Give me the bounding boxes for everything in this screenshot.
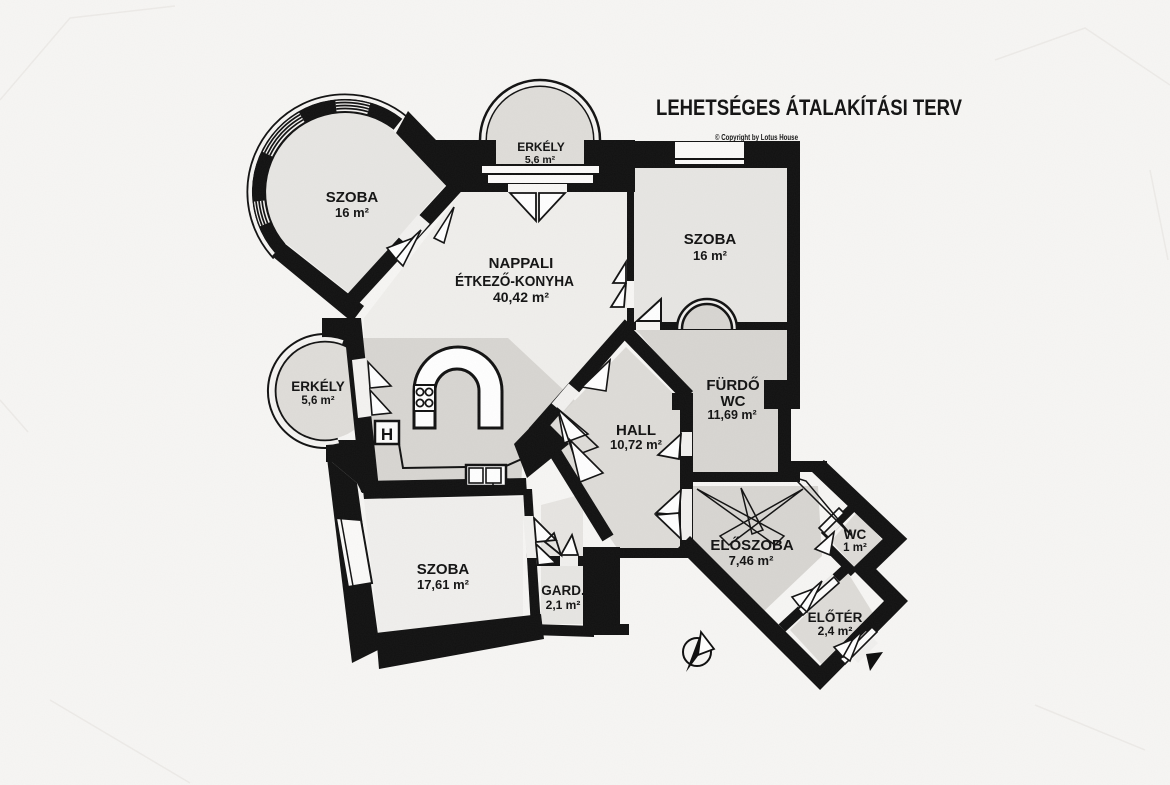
svg-text:7,46 m²: 7,46 m²: [729, 553, 774, 568]
svg-text:5,6 m²: 5,6 m²: [525, 154, 556, 166]
svg-text:LEHETSÉGES ÁTALAKÍTÁSI TERV: LEHETSÉGES ÁTALAKÍTÁSI TERV: [656, 95, 962, 120]
svg-text:NAPPALI: NAPPALI: [489, 255, 554, 272]
svg-text:5,6 m²: 5,6 m²: [301, 395, 334, 407]
svg-text:16 m²: 16 m²: [693, 248, 728, 263]
svg-text:SZOBA: SZOBA: [326, 189, 379, 206]
svg-text:SZOBA: SZOBA: [417, 561, 470, 578]
svg-text:WC: WC: [844, 527, 867, 542]
svg-text:2,1 m²: 2,1 m²: [546, 598, 581, 612]
svg-text:SZOBA: SZOBA: [684, 231, 737, 248]
svg-text:ERKÉLY: ERKÉLY: [291, 379, 345, 394]
svg-text:1 m²: 1 m²: [843, 542, 867, 554]
svg-text:11,69 m²: 11,69 m²: [707, 408, 756, 422]
svg-text:FÜRDŐ: FÜRDŐ: [706, 376, 760, 394]
svg-text:16 m²: 16 m²: [335, 205, 370, 220]
svg-text:© Copyright by Lotus House: © Copyright by Lotus House: [715, 133, 798, 142]
svg-text:17,61 m²: 17,61 m²: [417, 577, 470, 592]
svg-text:2,4 m²: 2,4 m²: [818, 624, 853, 638]
svg-text:ÉTKEZŐ-KONYHA: ÉTKEZŐ-KONYHA: [455, 272, 574, 290]
svg-text:ELŐSZOBA: ELŐSZOBA: [710, 536, 794, 554]
svg-text:10,72 m²: 10,72 m²: [610, 437, 663, 452]
svg-text:40,42 m²: 40,42 m²: [493, 289, 549, 305]
svg-text:ELŐTÉR: ELŐTÉR: [808, 610, 863, 625]
svg-text:GARD.: GARD.: [541, 583, 585, 598]
svg-text:ERKÉLY: ERKÉLY: [517, 139, 565, 154]
